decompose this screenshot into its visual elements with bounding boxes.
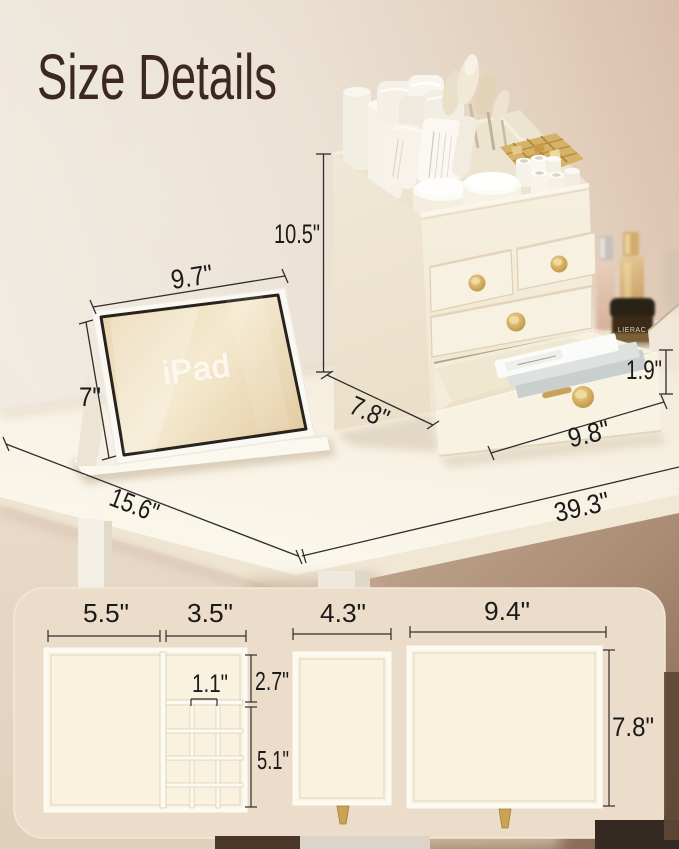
svg-text:1.1": 1.1"	[192, 670, 228, 698]
svg-text:7.8": 7.8"	[612, 712, 654, 742]
svg-text:9.4": 9.4"	[484, 596, 530, 626]
svg-text:2.7": 2.7"	[255, 666, 289, 696]
svg-text:Size Details: Size Details	[37, 41, 277, 113]
svg-text:4.3": 4.3"	[320, 598, 366, 628]
svg-text:5.5": 5.5"	[83, 598, 129, 628]
svg-text:LIERAC: LIERAC	[618, 327, 646, 334]
svg-text:7": 7"	[79, 382, 101, 412]
svg-text:5.1": 5.1"	[257, 745, 289, 775]
svg-text:3.5": 3.5"	[187, 598, 233, 628]
svg-text:1.9": 1.9"	[626, 355, 662, 385]
svg-text:10.5": 10.5"	[274, 219, 320, 249]
